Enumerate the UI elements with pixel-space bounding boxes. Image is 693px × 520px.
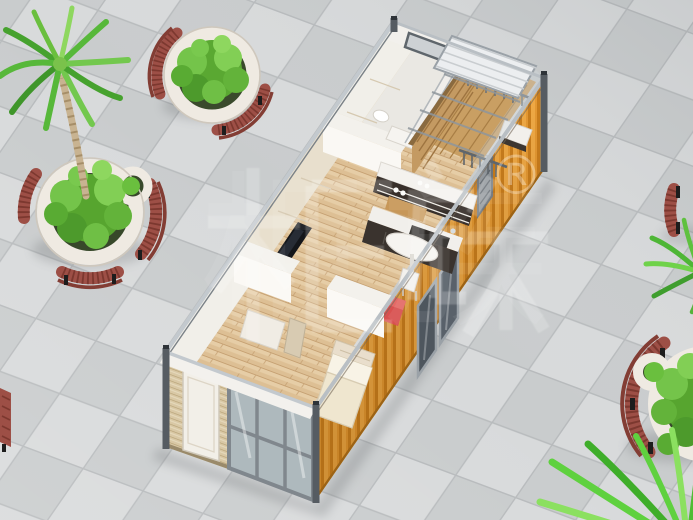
entry-door [183,370,219,461]
bench-left-edge [0,388,11,452]
corner-post-west [163,348,170,449]
render-viewport: 柜族 ® [0,0,693,520]
corner-post-north [391,18,398,32]
watermark-registered-mark: ® [489,144,543,207]
corner-post-south [313,404,320,503]
watermark: 柜族 ® [200,144,564,352]
